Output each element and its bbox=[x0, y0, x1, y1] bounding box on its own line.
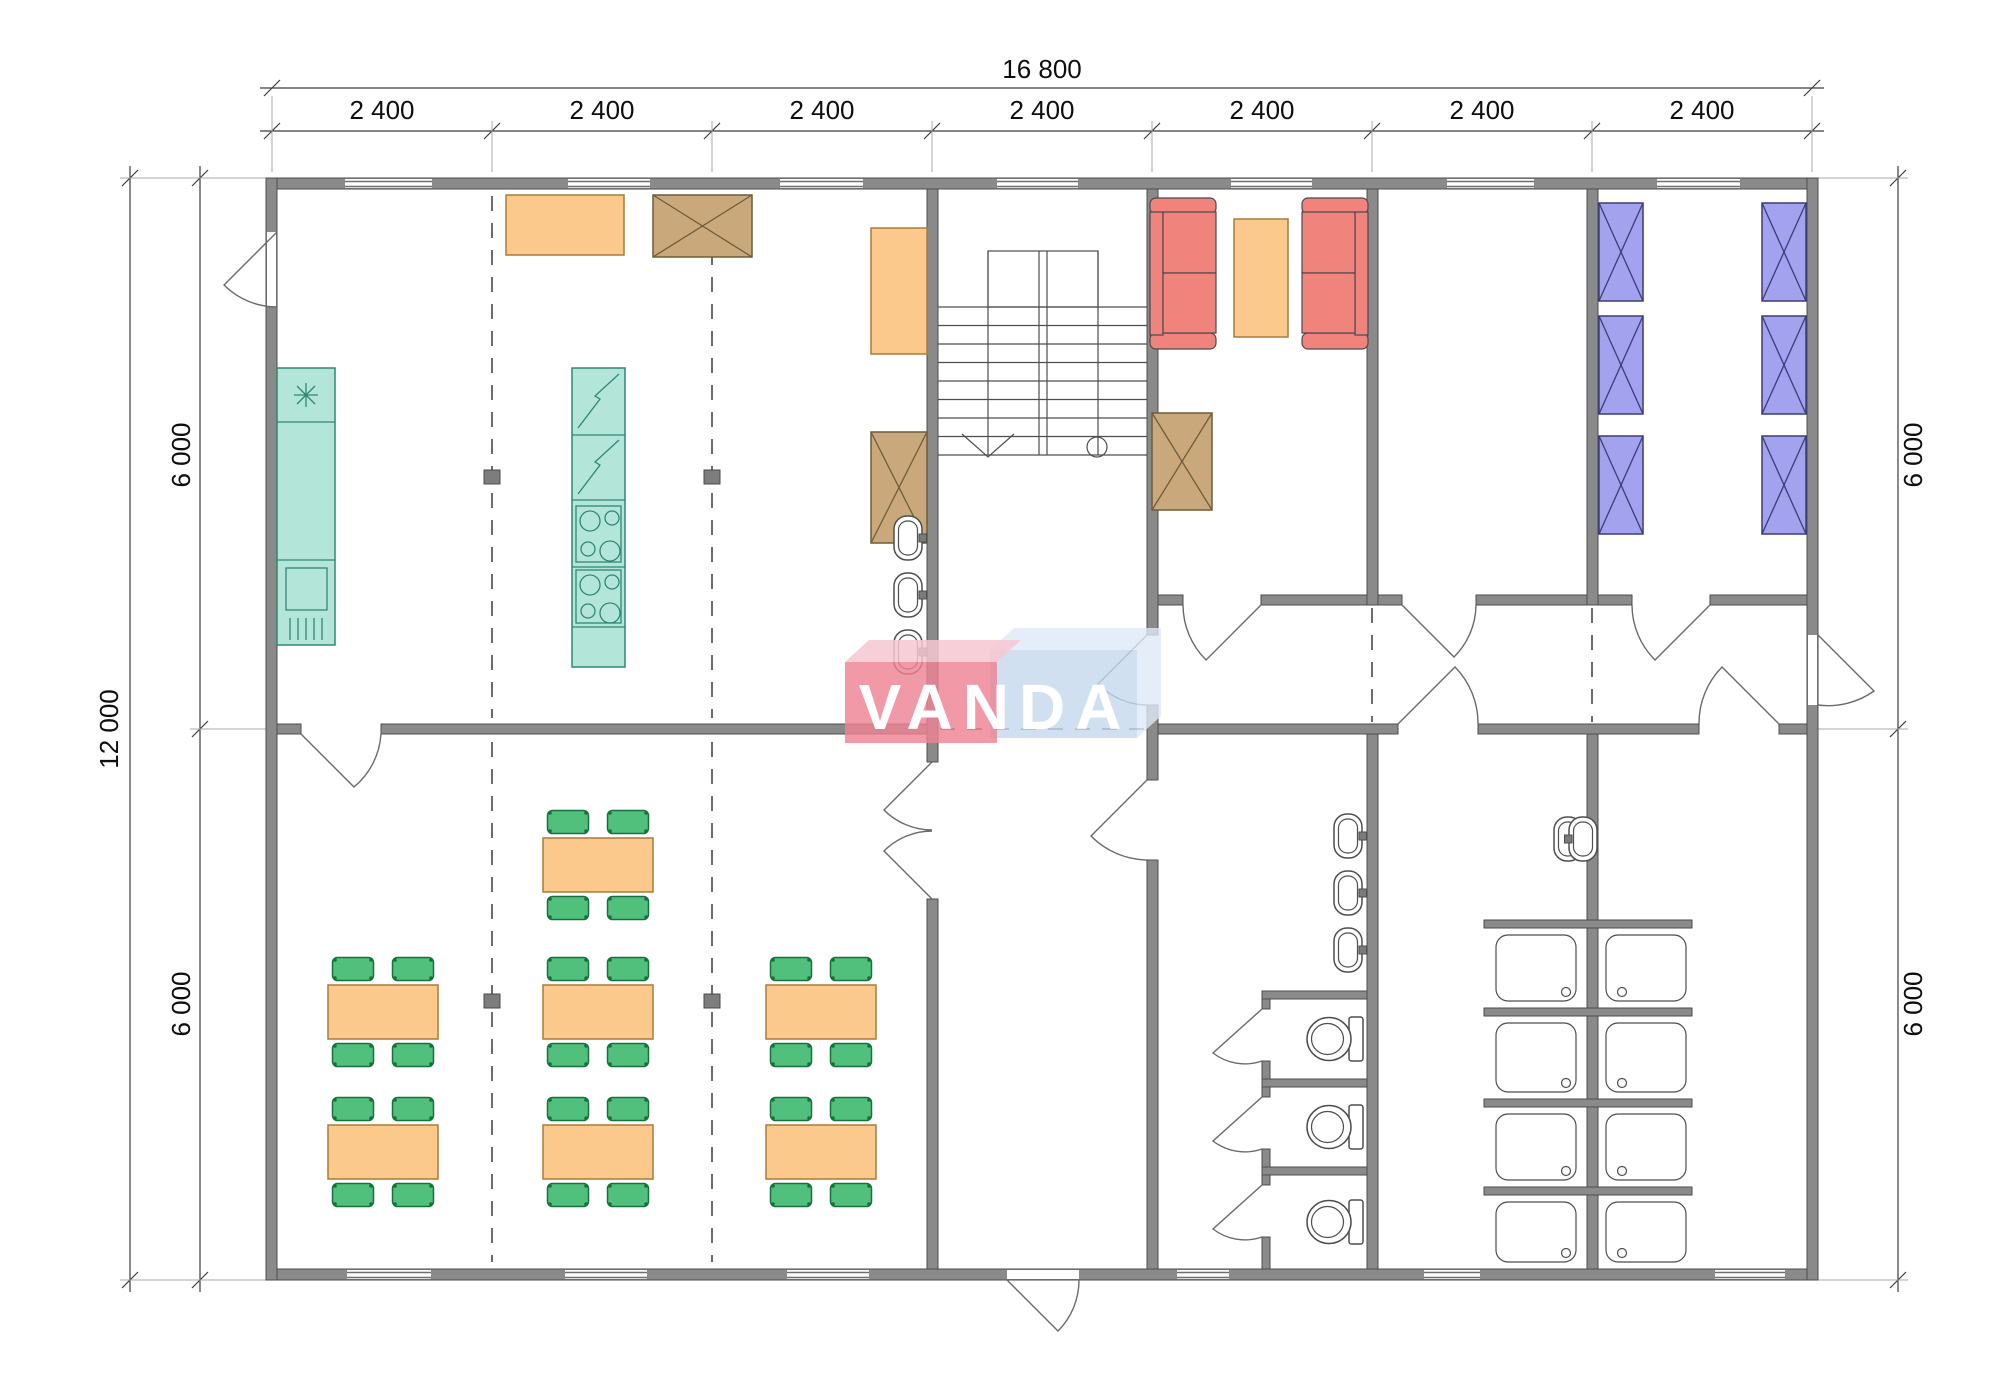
door-room bbox=[1402, 605, 1476, 657]
shower-cabin bbox=[1496, 1202, 1576, 1262]
logo-watermark: VANDA bbox=[845, 628, 1161, 743]
window bbox=[997, 179, 1078, 188]
door-washroom-1 bbox=[1091, 780, 1147, 860]
wall-right bbox=[1807, 178, 1818, 1280]
door-shower-room bbox=[1699, 667, 1779, 724]
dim-label: 2 400 bbox=[349, 95, 414, 125]
bunk-bed bbox=[1599, 316, 1643, 414]
dim-label: 2 400 bbox=[1229, 95, 1294, 125]
sink-star-icon bbox=[294, 383, 318, 407]
kitchen-counter bbox=[277, 368, 335, 645]
bunk-bed bbox=[1762, 436, 1806, 534]
cabinet-x bbox=[1152, 413, 1212, 510]
dining-set bbox=[543, 811, 653, 920]
bunk-bed bbox=[1599, 203, 1643, 301]
coffee-table bbox=[1234, 219, 1288, 337]
window bbox=[1231, 179, 1312, 188]
dim-right-segments: 6 000 6 000 bbox=[1818, 166, 1928, 1292]
sofa bbox=[1150, 198, 1216, 349]
bunk-bed bbox=[1599, 436, 1643, 534]
toilet bbox=[1307, 1200, 1363, 1244]
grid-marker bbox=[484, 994, 500, 1008]
dining-set bbox=[766, 958, 876, 1067]
kitchen-island bbox=[572, 368, 625, 667]
door-kitchen-dining bbox=[301, 734, 381, 787]
dim-label: 2 400 bbox=[569, 95, 634, 125]
dining-set bbox=[328, 1098, 438, 1207]
dim-label: 6 000 bbox=[1898, 971, 1928, 1036]
stall-door bbox=[1213, 1009, 1262, 1064]
dining-set bbox=[543, 1098, 653, 1207]
shower-cabin bbox=[1496, 935, 1576, 1001]
dim-left-total: 12 000 bbox=[94, 166, 138, 1292]
window bbox=[568, 179, 650, 188]
grid-marker bbox=[704, 994, 720, 1008]
washbasin bbox=[1334, 928, 1367, 972]
sofa bbox=[1302, 198, 1368, 349]
stair-column-icon bbox=[1087, 437, 1107, 457]
door-washroom-2 bbox=[1398, 667, 1478, 724]
floor-plan-svg: 16 800 2 400 2 400 2 400 2 400 2 400 2 4… bbox=[0, 0, 2000, 1380]
dim-top-total: 16 800 bbox=[260, 54, 1824, 96]
dining-set bbox=[328, 958, 438, 1067]
window bbox=[1177, 1270, 1229, 1279]
washbasin bbox=[894, 573, 927, 617]
logo-text: VANDA bbox=[859, 671, 1132, 743]
dining-area bbox=[328, 811, 876, 1207]
grid-marker bbox=[484, 470, 500, 484]
washbasin bbox=[1334, 871, 1367, 915]
washbasin bbox=[1334, 814, 1367, 858]
bunk-bed bbox=[1762, 203, 1806, 301]
window bbox=[1447, 179, 1534, 188]
dim-label: 6 000 bbox=[166, 971, 196, 1036]
door-double-dining bbox=[884, 762, 932, 899]
door-lounge bbox=[1183, 605, 1261, 660]
dim-label: 2 400 bbox=[1669, 95, 1734, 125]
shower-cabin bbox=[1606, 1023, 1686, 1092]
window bbox=[1424, 1270, 1480, 1279]
grid-marker bbox=[704, 470, 720, 484]
stairs bbox=[938, 251, 1147, 457]
dim-label: 2 400 bbox=[789, 95, 854, 125]
door-exterior-right bbox=[1818, 635, 1874, 706]
window bbox=[1715, 1270, 1785, 1279]
bedroom bbox=[1599, 203, 1806, 534]
bunk-bed bbox=[1762, 316, 1806, 414]
stall-door bbox=[1213, 1097, 1262, 1152]
door-main-entrance bbox=[1007, 1280, 1079, 1331]
dim-left-segments: 6 000 6 000 bbox=[120, 166, 266, 1292]
shower-cabin bbox=[1606, 1202, 1686, 1262]
floor-plan-page: 16 800 2 400 2 400 2 400 2 400 2 400 2 4… bbox=[0, 0, 2000, 1380]
dim-label: 2 400 bbox=[1009, 95, 1074, 125]
dim-top-bays: 2 400 2 400 2 400 2 400 2 400 2 400 2 40… bbox=[260, 95, 1824, 172]
window bbox=[780, 179, 863, 188]
shower-cabin bbox=[1606, 1114, 1686, 1180]
serving-table bbox=[506, 195, 624, 255]
shower-cabin bbox=[1606, 935, 1686, 1001]
dim-label: 2 400 bbox=[1449, 95, 1514, 125]
dim-label: 6 000 bbox=[1898, 422, 1928, 487]
window bbox=[347, 1270, 431, 1279]
shower-cabin bbox=[1496, 1114, 1576, 1180]
washroom-1 bbox=[1213, 814, 1367, 1269]
window bbox=[565, 1270, 647, 1279]
shower-cabin bbox=[1496, 1023, 1576, 1092]
window bbox=[1657, 179, 1740, 188]
toilet bbox=[1307, 1017, 1363, 1061]
serving-table bbox=[871, 228, 927, 354]
wall-left bbox=[266, 178, 277, 1280]
lounge bbox=[1150, 198, 1368, 510]
window bbox=[787, 1270, 869, 1279]
door-bedroom bbox=[1632, 605, 1710, 660]
dim-label: 16 800 bbox=[1002, 54, 1082, 84]
dim-label: 12 000 bbox=[94, 689, 124, 769]
toilet bbox=[1307, 1105, 1363, 1149]
dining-set bbox=[543, 958, 653, 1067]
cabinet-x bbox=[653, 195, 752, 257]
window bbox=[345, 179, 432, 188]
stall-door bbox=[1213, 1185, 1262, 1240]
dining-set bbox=[766, 1098, 876, 1207]
dim-label: 6 000 bbox=[166, 422, 196, 487]
